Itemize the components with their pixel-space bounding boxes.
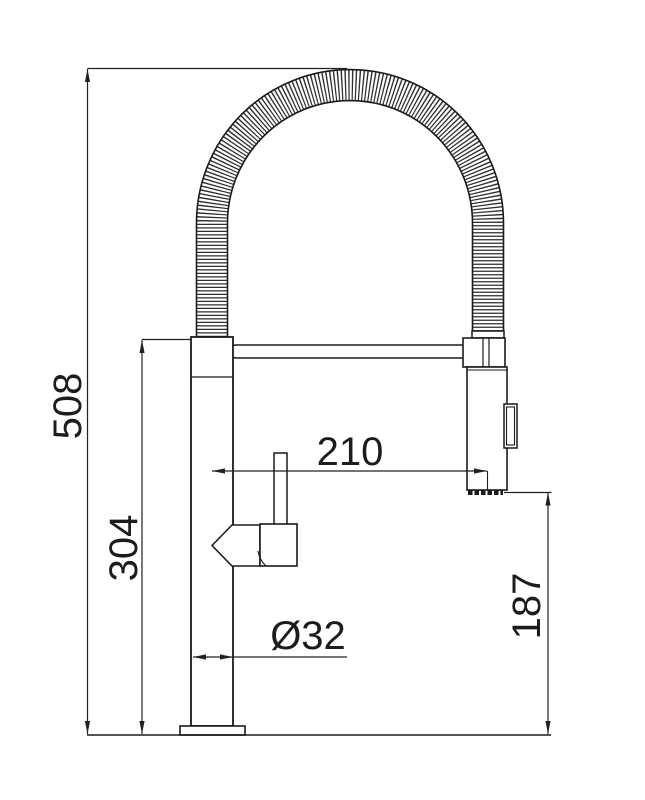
dimension-label-overall-height: 508 [48,373,88,440]
spray-head-fitting [463,338,505,367]
arrow-304-top [139,340,144,353]
dimension-label-body-height: 304 [104,515,144,582]
arrow-508-top [85,69,90,82]
arrow-508-bottom [85,721,90,734]
hose-inner-edge [228,101,473,337]
arrow-187-top [545,493,550,506]
arrow-187-bottom [545,721,550,734]
spout-arm [230,345,464,358]
dimension-label-spray-outlet-clearance: 187 [507,573,547,640]
dimension-label-spout-reach: 210 [317,432,384,472]
hose-outer-edge [197,70,504,337]
hose-collar [472,331,504,338]
handle-stem [274,453,287,525]
base-flange [180,726,245,735]
technical-drawing-page: 508 304 210 Ø32 187 [0,0,645,800]
dimension-label-base-diameter: Ø32 [270,616,346,656]
spring-hose-arch [197,70,504,337]
faucet-drawing [0,0,645,800]
hose-corrugation-band [212,85,488,337]
arrow-304-bottom [139,721,144,734]
handle-base [260,524,297,566]
